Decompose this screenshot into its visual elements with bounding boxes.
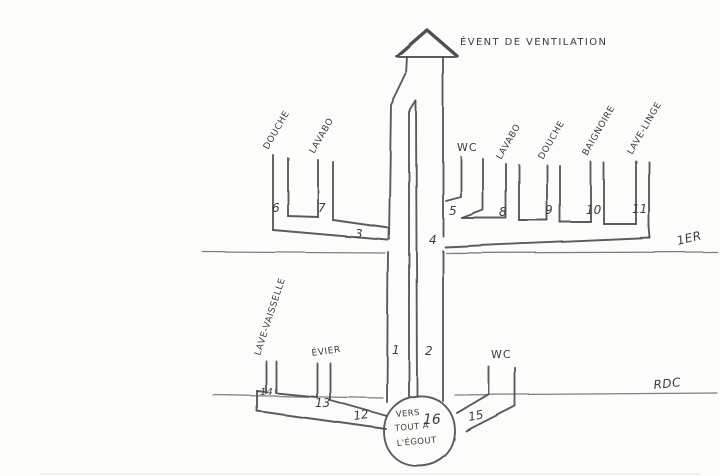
floor-label-first: 1ER xyxy=(675,228,703,248)
pipe-number-12: 12 xyxy=(352,407,369,423)
diagram-labels: ÉVENT DE VENTILATION DOUCHE LAVABO WC LA… xyxy=(253,35,703,449)
stack-inner-cap xyxy=(409,101,416,112)
pipe-number-15: 15 xyxy=(467,408,484,424)
pipe-number-11: 11 xyxy=(632,202,647,216)
floor-label-ground: RDC xyxy=(653,375,682,392)
g0-wc-pipe xyxy=(457,367,515,431)
pipe-number-4: 4 xyxy=(429,233,437,247)
sewer-text-line3: L'ÉGOUT xyxy=(396,434,437,449)
pipe-number-3: 3 xyxy=(355,227,363,241)
left-collector-top xyxy=(288,216,389,228)
right-collector-bottom xyxy=(445,238,650,247)
fixture-label-lavelinge: LAVE-LINGE xyxy=(626,100,664,156)
diagram-canvas: ÉVENT DE VENTILATION DOUCHE LAVABO WC LA… xyxy=(0,0,720,476)
pipe-number-7: 7 xyxy=(318,201,326,215)
left-collector-bottom xyxy=(273,230,388,240)
pipe-number-1: 1 xyxy=(392,343,400,357)
f1-lavelinge-pipe xyxy=(636,161,649,226)
pipe-number-6: 6 xyxy=(272,201,280,215)
pipe-number-14: 14 xyxy=(260,387,273,398)
fixture-label-lavevaisselle: LAVE-VAISSELLE xyxy=(253,277,288,357)
pipe-number-8: 8 xyxy=(499,205,507,219)
vent-roof-icon xyxy=(397,30,457,56)
vent-label: ÉVENT DE VENTILATION xyxy=(460,35,607,48)
scan-edge-artifact xyxy=(40,473,700,475)
stack-outer-left-lower xyxy=(387,252,388,402)
fixture-label-wc-ground: WC xyxy=(491,348,512,361)
stack-outer-left-upper xyxy=(389,57,407,239)
pipe-number-13: 13 xyxy=(315,396,330,410)
fixture-label-wc-first: WC xyxy=(457,141,478,154)
fixture-label-douche-left: DOUCHE xyxy=(262,109,292,151)
g0-evier-pipe xyxy=(317,363,330,399)
fixture-label-douche-right: DOUCHE xyxy=(537,119,567,161)
sewer-text-line2: TOUT A xyxy=(393,421,429,434)
right-collector-end xyxy=(649,226,650,238)
pipe-number-5: 5 xyxy=(449,204,457,218)
pipe-number-10: 10 xyxy=(586,203,602,217)
fixture-label-baignoire: BAIGNOIRE xyxy=(581,104,618,157)
right-collector-top xyxy=(462,218,636,224)
fixture-label-lavabo-left: LAVABO xyxy=(308,117,336,156)
sewer-text-line1: VERS xyxy=(395,408,420,420)
f1-douche-pipe xyxy=(273,155,288,230)
plumbing-diagram: ÉVENT DE VENTILATION DOUCHE LAVABO WC LA… xyxy=(0,0,720,476)
f1-lavabo-right-pipe xyxy=(506,164,519,220)
fixture-label-lavabo-right: LAVABO xyxy=(495,123,523,162)
stack-inner-right xyxy=(416,101,417,396)
first-floor-line xyxy=(203,252,717,253)
fixture-label-evier: ÉVIER xyxy=(311,343,342,359)
pipe-number-2: 2 xyxy=(425,344,433,358)
pipe-number-9: 9 xyxy=(545,203,553,217)
